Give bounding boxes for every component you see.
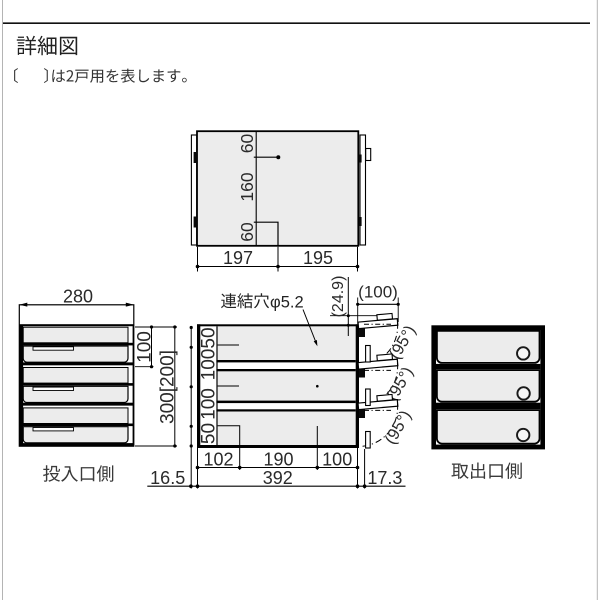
svg-text:60: 60	[237, 134, 257, 154]
svg-text:100: 100	[322, 450, 352, 470]
svg-text:300[200]: 300[200]	[158, 350, 179, 424]
svg-text:160: 160	[237, 172, 257, 201]
svg-text:(95°): (95°)	[381, 407, 415, 447]
svg-text:195: 195	[303, 248, 333, 268]
svg-text:17.3: 17.3	[367, 468, 402, 488]
svg-text:102: 102	[203, 450, 233, 470]
svg-text:197: 197	[223, 248, 253, 268]
svg-text:φ5.2: φ5.2	[270, 293, 304, 311]
svg-text:(24.9): (24.9)	[330, 276, 347, 318]
svg-text:60: 60	[237, 222, 257, 242]
svg-text:100: 100	[135, 331, 156, 363]
svg-text:100: 100	[199, 349, 220, 381]
svg-text:280: 280	[63, 287, 93, 307]
svg-text:50: 50	[199, 423, 220, 444]
svg-text:190: 190	[263, 450, 293, 470]
svg-text:100: 100	[199, 388, 220, 420]
svg-text:16.5: 16.5	[150, 468, 185, 488]
svg-text:392: 392	[263, 468, 293, 488]
svg-text:50: 50	[199, 327, 220, 348]
svg-text:(100): (100)	[358, 283, 398, 302]
